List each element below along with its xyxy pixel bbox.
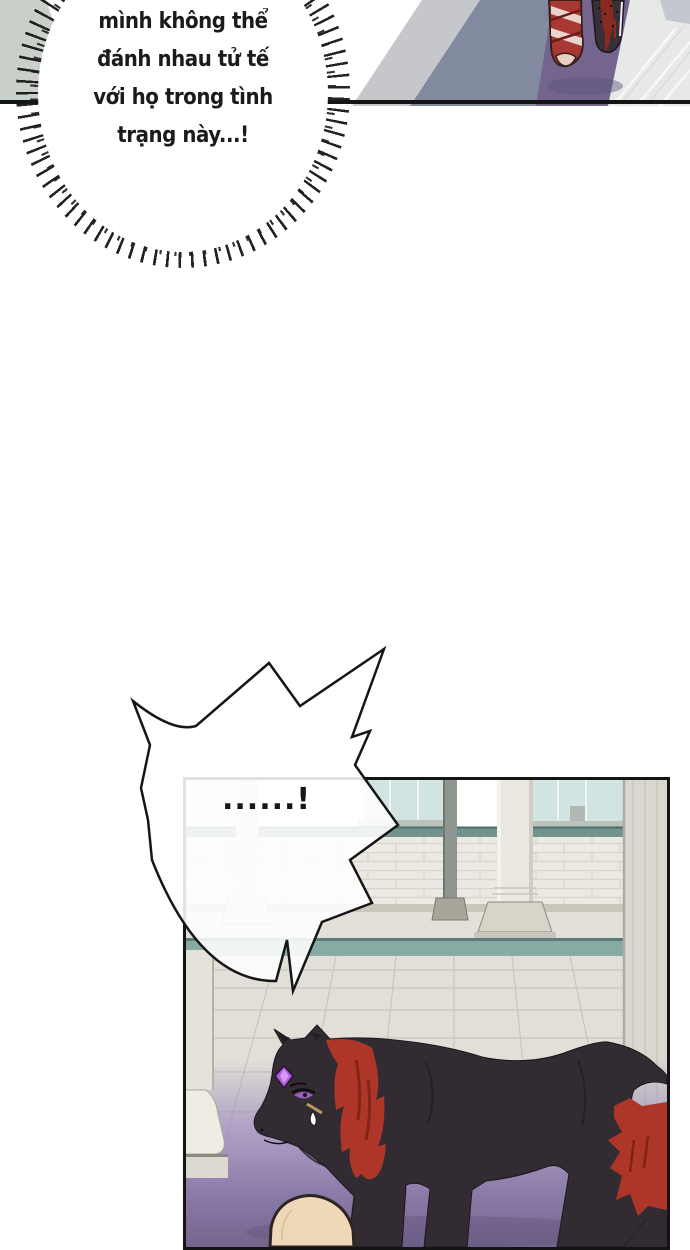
bubble-line: mình không thể <box>54 3 311 41</box>
bloody-right-foot <box>592 0 624 52</box>
spiky-bubble <box>118 638 410 1010</box>
spiky-bubble-text: ......! <box>222 782 342 817</box>
bubble-line: đánh nhau tử tế <box>54 41 311 79</box>
burst-bubble-text: mình không thể đánh nhau tử tế với họ tr… <box>54 0 311 155</box>
spiky-bubble-shape <box>133 649 398 991</box>
bloody-left-foot <box>549 0 583 66</box>
comic-page: mình không thể đánh nhau tử tế với họ tr… <box>0 0 690 1250</box>
bubble-line: với họ trong tình <box>54 79 311 117</box>
bubble-line: trạng này...! <box>54 117 311 155</box>
